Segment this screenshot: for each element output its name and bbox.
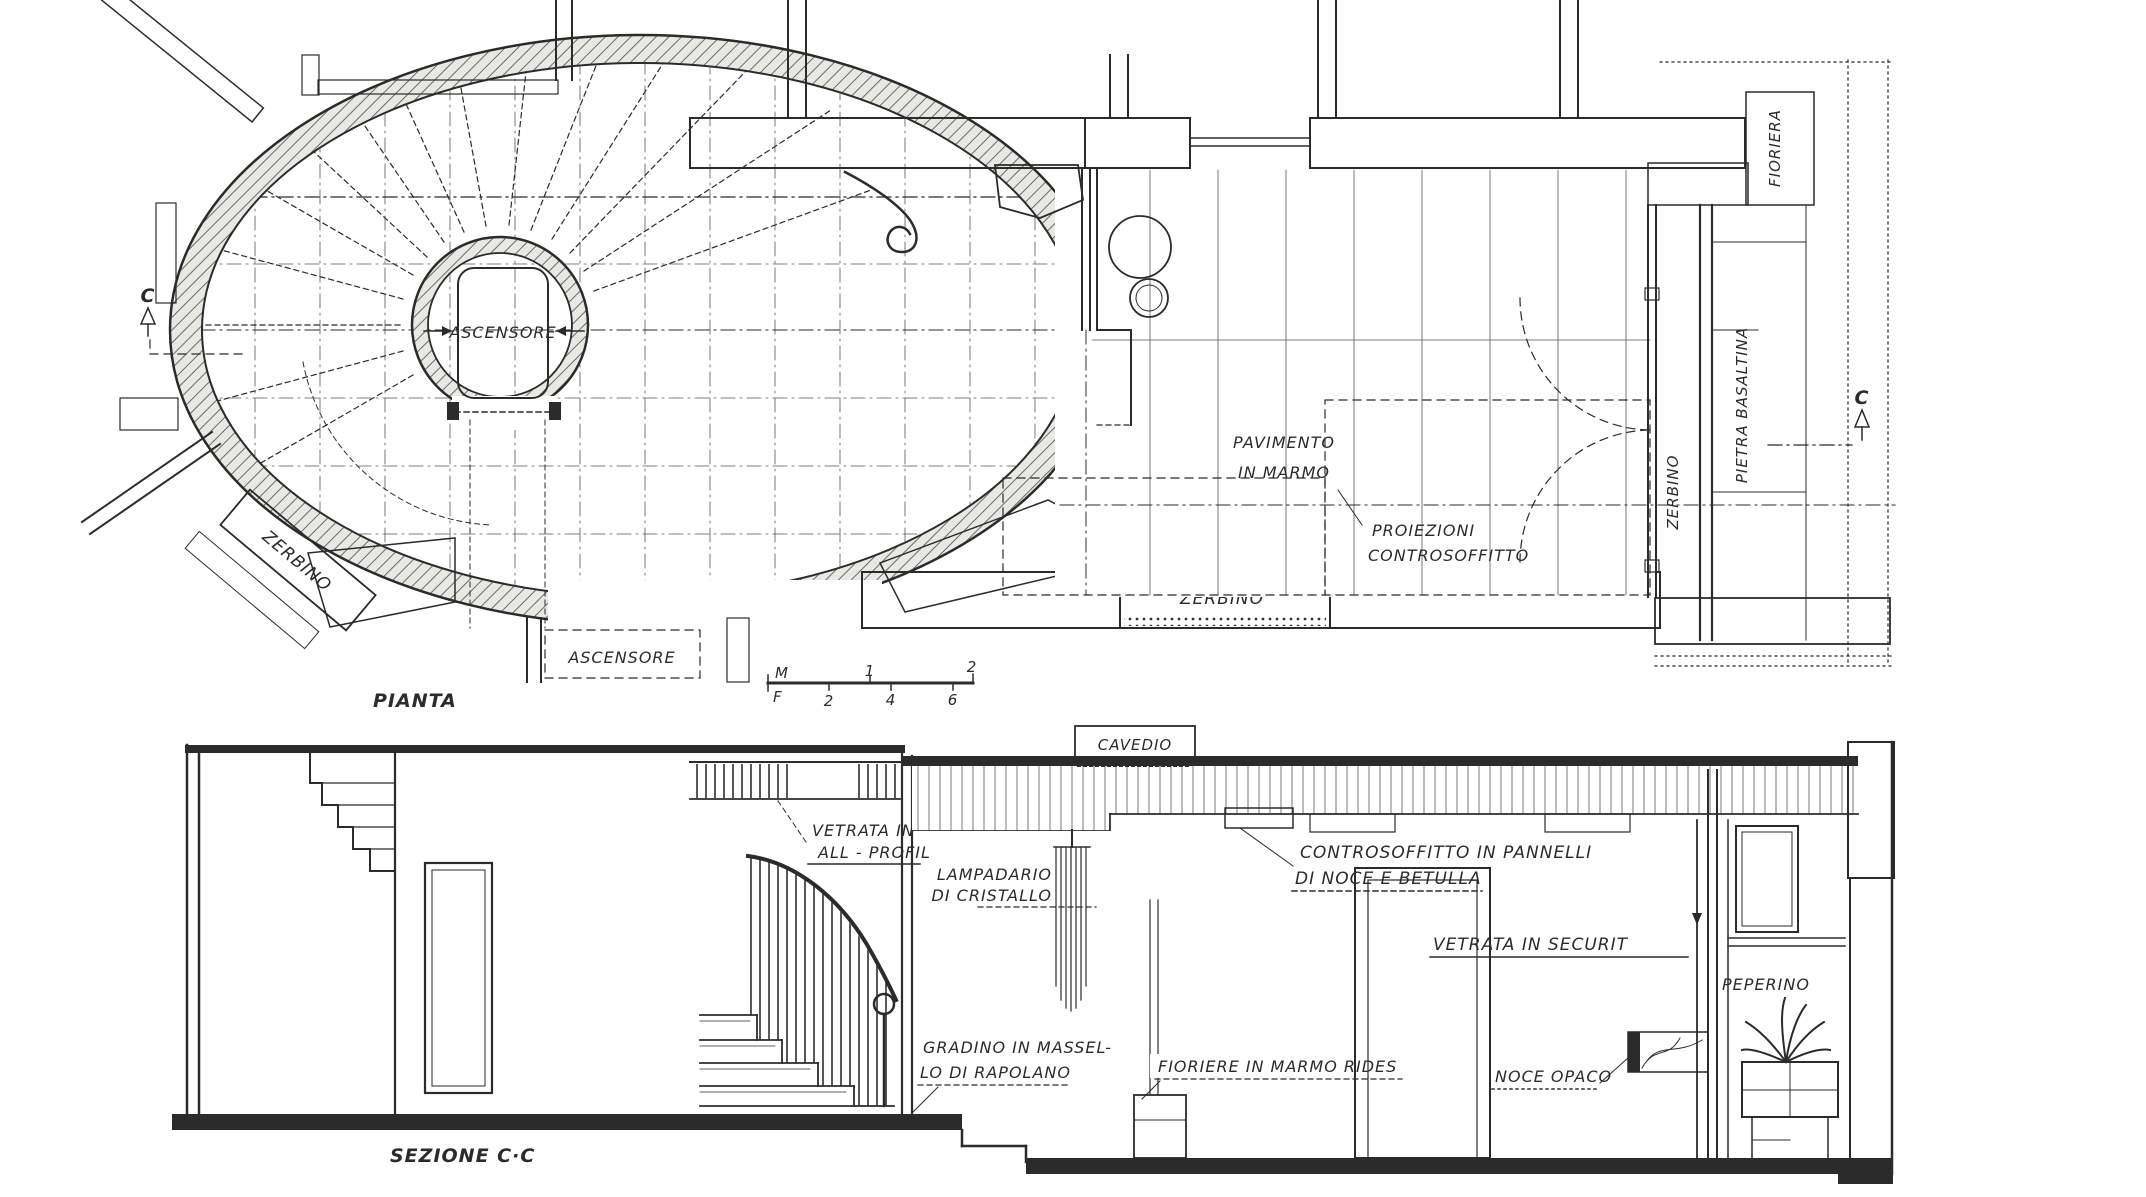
elevator-core: ASCENSORE: [412, 237, 588, 430]
scale-bar: M F 1 2 2 4 6: [768, 658, 977, 710]
section-title: SEZIONE C·C: [390, 1145, 535, 1167]
label-controsoffitto-2: DI NOCE E BETULLA: [1295, 869, 1482, 889]
section-arrow-right-icon: [1855, 410, 1869, 427]
label-lampadario-2: DI CRISTALLO: [932, 886, 1052, 905]
cross-section: VETRATA IN ALL - PROFIL CAVEDIO: [172, 726, 1894, 1184]
door-jamb-left: [447, 402, 459, 420]
label-fioriere: FIORIERE IN MARMO RIDES: [1158, 1057, 1397, 1076]
marble-planter: FIORIERE IN MARMO RIDES: [1134, 900, 1408, 1158]
scale-m1: 1: [865, 662, 876, 680]
label-controsoffitto-1: CONTROSOFFITTO IN PANNELLI: [1300, 843, 1592, 863]
scale-feet-unit: F: [773, 688, 783, 706]
arrow-right-icon: [556, 326, 566, 336]
label-pietra-basaltina: PIETRA BASALTINA: [1733, 327, 1751, 483]
label-peperino: PEPERINO: [1722, 975, 1810, 994]
label-ascensore-lower: ASCENSORE: [567, 648, 675, 667]
entry-lintel: [1648, 163, 1748, 205]
plant-icon: [1742, 998, 1830, 1062]
label-pavimento-2: IN MARMO: [1238, 463, 1330, 482]
section-marker-right: C: [1768, 387, 1869, 445]
walnut-panel: NOCE OPACO: [1492, 1032, 1708, 1089]
door-jamb-right: [549, 402, 561, 420]
stair-soffit-steps: [310, 753, 395, 871]
entrance-gap: [548, 580, 882, 648]
ceiling-panels-label: CONTROSOFFITTO IN PANNELLI DI NOCE E BET…: [1240, 828, 1592, 891]
right-end-strips: ZERBINO PIETRA BASALTINA FIORIERA: [1648, 60, 1890, 662]
architectural-drawing-canvas: ASCENSORE ASCENSORE ZERBINO: [0, 0, 2146, 1197]
right-wing: PAVIMENTO IN MARMO PROIEZIONI CONTROSOFF…: [1003, 165, 1895, 597]
label-gradino-1: GRADINO IN MASSEL-: [923, 1038, 1112, 1057]
drawing-sheet: ASCENSORE ASCENSORE ZERBINO: [0, 0, 2146, 1197]
chandelier: LAMPADARIO DI CRISTALLO: [932, 830, 1096, 1011]
label-vetrata-profil-2: ALL - PROFIL: [817, 843, 931, 862]
glass-arrow-icon: [1692, 913, 1702, 925]
label-cavedio: CAVEDIO: [1098, 736, 1173, 754]
section-right-room: CAVEDIO: [902, 726, 1858, 832]
label-pavimento-1: PAVIMENTO: [1233, 433, 1335, 452]
scale-f2: 2: [824, 692, 835, 710]
scale-m2: 2: [967, 658, 978, 676]
ceiling-coffer: [1545, 814, 1630, 832]
stair-fan: [158, 0, 871, 525]
label-proiezioni-1: PROIEZIONI: [1372, 521, 1475, 540]
door-elevation: [425, 863, 492, 1093]
scale-f6: 6: [948, 691, 959, 709]
label-proiezioni-2: CONTROSOFFITTO: [1368, 546, 1529, 565]
wall-volute: [845, 172, 916, 252]
ceiling-coffer: [1310, 814, 1395, 832]
label-vetrata-profil-1: VETRATA IN: [812, 821, 915, 840]
label-lampadario-1: LAMPADARIO: [937, 865, 1052, 884]
label-fioriera: FIORIERA: [1766, 109, 1784, 187]
label-zerbino-right: ZERBINO: [1664, 455, 1682, 531]
curved-staircase: [700, 856, 896, 1106]
label-vetrata-securit: VETRATA IN SECURIT: [1433, 935, 1629, 955]
floor-plan: ASCENSORE ASCENSORE ZERBINO: [82, 0, 1895, 712]
glass-wall: VETRATA IN SECURIT: [1355, 770, 1717, 1158]
label-noce-opaco: NOCE OPACO: [1495, 1067, 1612, 1086]
peperino-unit: PEPERINO: [1722, 820, 1845, 1158]
section-letter-right: C: [1855, 387, 1870, 409]
label-gradino-2: LO DI RAPOLANO: [920, 1063, 1071, 1082]
upper-balustrade: VETRATA IN ALL - PROFIL: [690, 762, 931, 864]
scale-meters-unit: M: [775, 664, 789, 682]
glass-door-frame: [1355, 868, 1490, 1158]
label-ascensore: ASCENSORE: [448, 323, 556, 342]
section-arrow-left-icon: [141, 308, 155, 324]
plan-title: PIANTA: [373, 690, 457, 712]
section-letter-left: C: [141, 285, 156, 307]
scale-f4: 4: [886, 691, 897, 709]
